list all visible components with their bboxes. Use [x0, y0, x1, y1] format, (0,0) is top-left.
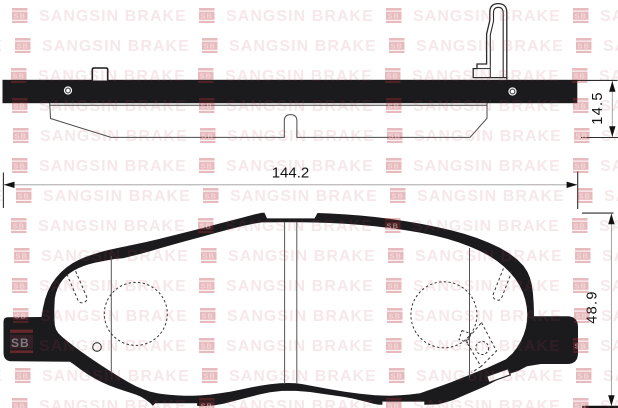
svg-text:SB: SB	[11, 336, 30, 350]
